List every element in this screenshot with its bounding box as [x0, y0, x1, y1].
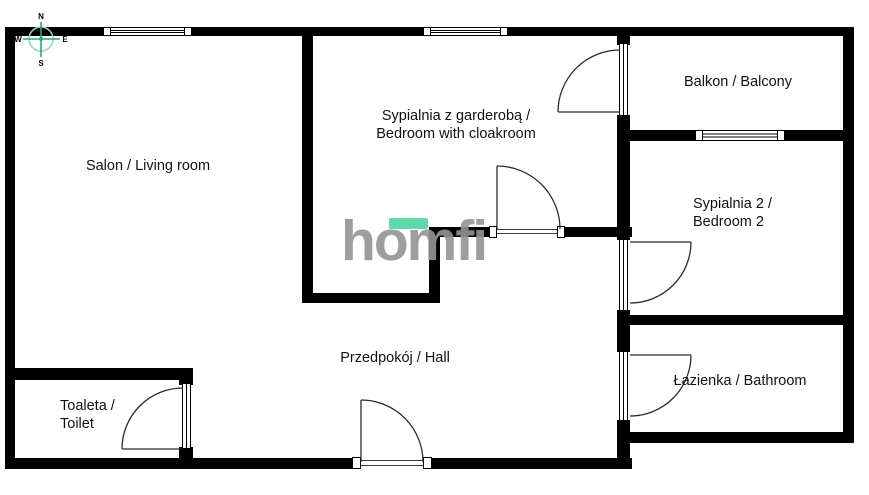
room-label-toilet: Toaleta / Toilet: [60, 397, 115, 433]
wall-bottom-left: [5, 458, 352, 469]
wall-right: [843, 27, 854, 443]
bedroom-window-cap-right: [500, 27, 508, 36]
toilet-door-arc: [122, 388, 183, 449]
room-label-toilet-line2: Toilet: [60, 415, 115, 433]
room-label-bathroom: Łazienka / Bathroom: [674, 372, 807, 390]
wall-mid-lower: [617, 420, 630, 469]
balcony-window: [695, 130, 785, 141]
wall-balcony-bottom-right: [785, 130, 843, 141]
wall-toilet-door-jamb-top: [179, 368, 193, 385]
bedroom-door-cap-right: [557, 226, 565, 238]
balcony-door-arc: [558, 50, 620, 112]
entry-door-threshold: [361, 460, 423, 466]
wall-cloakroom-bottom: [302, 293, 440, 303]
wall-mid-stub-top: [617, 27, 630, 45]
entry-door-cap-right: [423, 457, 432, 469]
bedroom-window-cap-left: [423, 27, 431, 36]
salon-window: [103, 27, 192, 36]
wall-bottom-right: [432, 458, 632, 469]
room-label-bedroom-cloakroom-line2: Bedroom with cloakroom: [376, 125, 536, 143]
salon-window-cap-right: [184, 27, 192, 36]
room-label-toilet-line1: Toaleta /: [60, 397, 115, 415]
entry-door-cap-left: [352, 457, 361, 469]
compass-s-label: S: [38, 59, 44, 68]
wall-toilet-door-jamb-bottom: [179, 447, 193, 459]
compass-center-dot: [39, 37, 43, 41]
wall-bathroom-bottom: [630, 432, 843, 443]
bedroom-door-threshold: [497, 229, 557, 234]
bedroom2-door-frame: [619, 240, 628, 310]
bathroom-door-frame: [619, 352, 628, 420]
compass-e-label: E: [62, 35, 68, 44]
entry-door-arc: [361, 400, 423, 462]
balcony-window-cap-left: [695, 130, 703, 141]
room-label-hall: Przedpokój / Hall: [340, 349, 450, 367]
compass-w-label: W: [14, 35, 22, 44]
wall-salon-divider: [302, 27, 313, 303]
toilet-door-frame: [182, 384, 191, 448]
wall-top-right: [508, 27, 854, 36]
floor-plan: homfi N W E S Salon / Living room Sypial…: [0, 0, 869, 495]
bedroom2-door-arc: [630, 242, 691, 303]
room-label-balcony: Balkon / Balcony: [684, 73, 792, 91]
balcony-door-frame: [619, 44, 628, 115]
room-label-bedroom2-line1: Sypialnia 2 /: [693, 195, 772, 213]
balcony-window-cap-right: [777, 130, 785, 141]
wall-mid-between-doors: [617, 310, 630, 352]
wall-left: [5, 27, 15, 469]
room-label-living-room: Salon / Living room: [86, 157, 210, 175]
homfi-macron-accent: [389, 218, 428, 229]
compass-n-label: N: [38, 12, 44, 21]
room-label-bedroom2-line2: Bedroom 2: [693, 213, 772, 231]
room-label-bedroom2: Sypialnia 2 / Bedroom 2: [693, 195, 772, 231]
compass-rose: N W E S: [14, 10, 70, 68]
room-label-bedroom-cloakroom: Sypialnia z garderobą / Bedroom with clo…: [376, 107, 536, 143]
bedroom-door-arc: [497, 166, 560, 229]
bedroom-door-cap-left: [489, 226, 497, 238]
wall-mid-upper: [617, 115, 630, 240]
room-label-bedroom-cloakroom-line1: Sypialnia z garderobą /: [376, 107, 536, 125]
wall-balcony-bottom-left: [630, 130, 695, 141]
salon-window-cap-left: [103, 27, 111, 36]
wall-bedroom2-bathroom-divider: [630, 315, 843, 325]
wall-toilet-top: [15, 368, 193, 380]
bedroom-window: [423, 27, 508, 36]
